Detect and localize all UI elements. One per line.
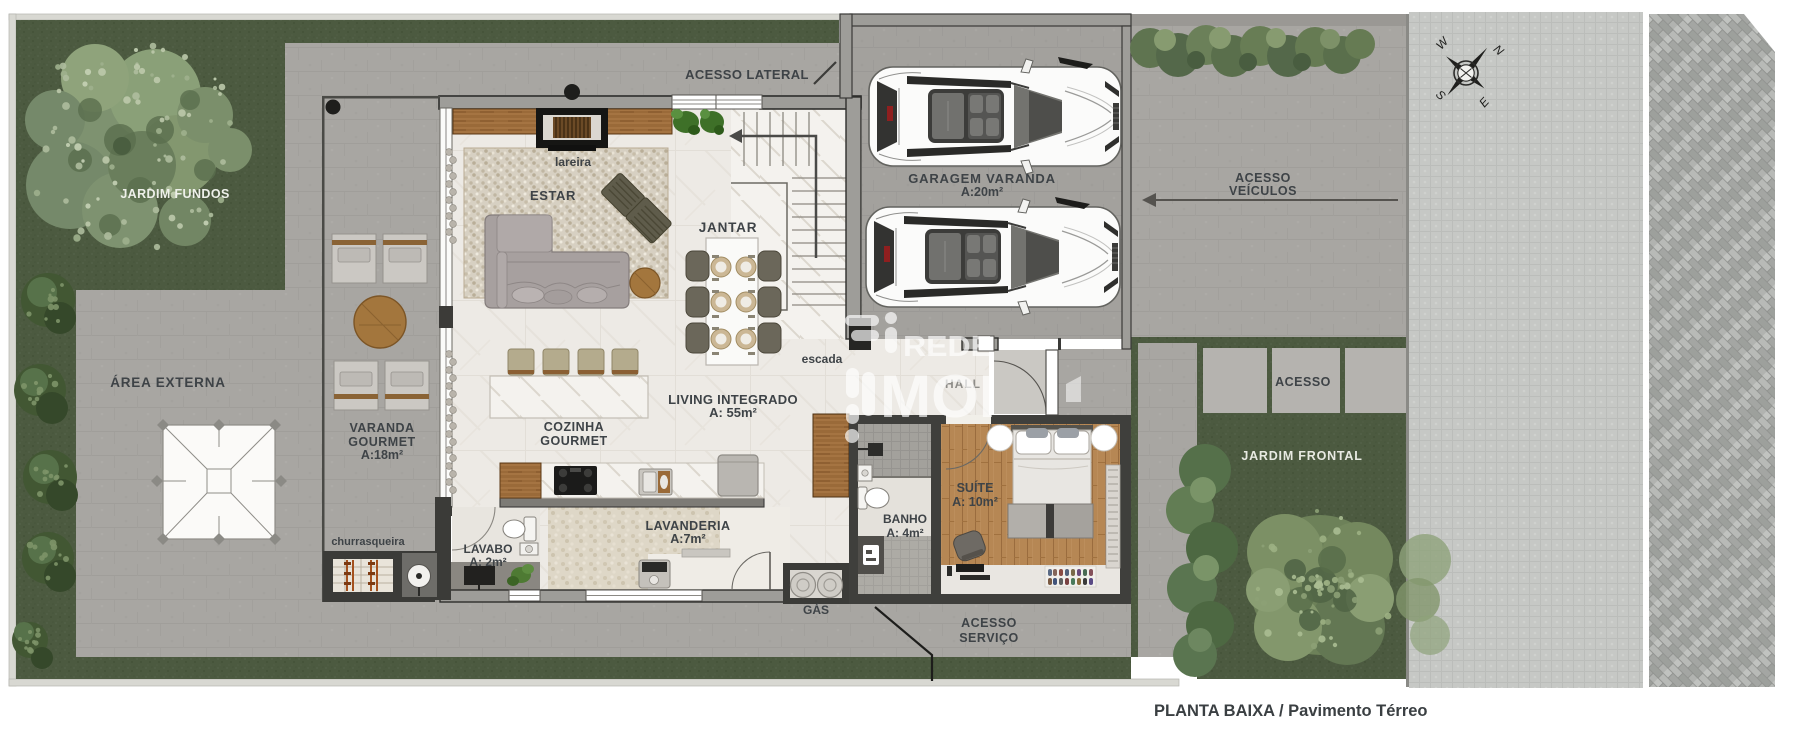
svg-text:escada: escada [802,352,843,366]
svg-text:SUÍTE: SUÍTE [957,480,994,495]
svg-text:MOI: MOI [880,363,996,430]
svg-text:LAVANDERIA: LAVANDERIA [645,519,730,533]
svg-text:PLANTA BAIXA / Pavimento Térre: PLANTA BAIXA / Pavimento Térreo [1154,702,1428,720]
svg-text:A:20m²: A:20m² [961,185,1003,199]
svg-text:ACESSO: ACESSO [1275,375,1331,389]
svg-text:GOURMET: GOURMET [348,435,415,449]
svg-text:REDE: REDE [903,331,992,363]
svg-text:ACESSO: ACESSO [1235,171,1291,185]
svg-text:BANHO: BANHO [883,512,927,526]
svg-text:ACESSO LATERAL: ACESSO LATERAL [685,67,809,82]
svg-text:JARDIM FUNDOS: JARDIM FUNDOS [120,187,229,201]
svg-text:ÁREA EXTERNA: ÁREA EXTERNA [110,375,226,390]
svg-text:A: 55m²: A: 55m² [709,405,757,420]
svg-text:A: 10m²: A: 10m² [952,495,998,509]
svg-text:ESTAR: ESTAR [530,188,576,203]
svg-text:A:18m²: A:18m² [361,448,403,462]
svg-text:GARAGEM VARANDA: GARAGEM VARANDA [908,171,1056,186]
svg-text:SERVIÇO: SERVIÇO [959,631,1019,645]
svg-text:A: 2m²: A: 2m² [469,555,506,569]
svg-text:A: 4m²: A: 4m² [886,526,923,540]
svg-text:JARDIM FRONTAL: JARDIM FRONTAL [1241,449,1362,463]
svg-text:LAVABO: LAVABO [464,542,513,556]
svg-text:GOURMET: GOURMET [540,434,607,448]
svg-text:lareira: lareira [555,155,591,169]
svg-text:A:7m²: A:7m² [670,532,705,546]
svg-text:VARANDA: VARANDA [349,421,414,435]
svg-text:churrasqueira: churrasqueira [331,536,405,548]
svg-text:JANTAR: JANTAR [699,220,758,235]
svg-text:ACESSO: ACESSO [961,616,1017,630]
svg-text:VEÍCULOS: VEÍCULOS [1229,183,1297,198]
svg-text:COZINHA: COZINHA [544,420,604,434]
svg-text:GÁS: GÁS [803,602,829,617]
